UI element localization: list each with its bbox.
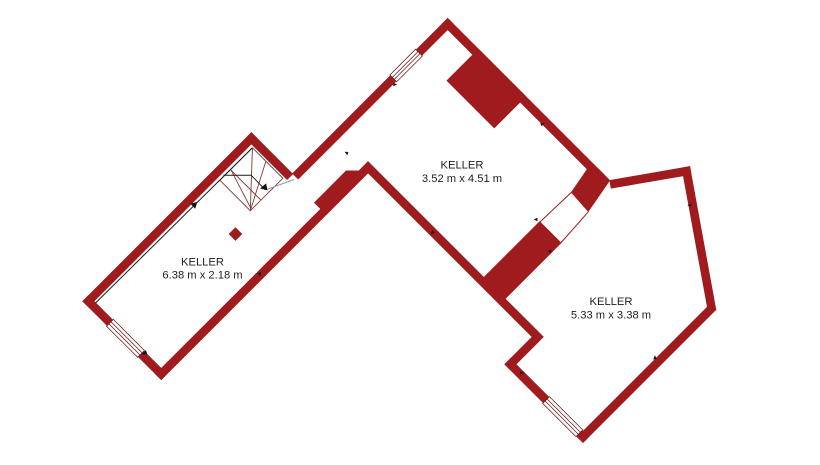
svg-text:KELLER: KELLER bbox=[590, 296, 633, 308]
svg-text:3.52 m x 4.51 m: 3.52 m x 4.51 m bbox=[422, 173, 502, 185]
svg-text:KELLER: KELLER bbox=[181, 257, 224, 269]
svg-text:6.38 m x 2.18 m: 6.38 m x 2.18 m bbox=[162, 270, 242, 282]
svg-text:5.33 m x 3.38 m: 5.33 m x 3.38 m bbox=[571, 310, 651, 322]
svg-text:KELLER: KELLER bbox=[441, 160, 484, 172]
